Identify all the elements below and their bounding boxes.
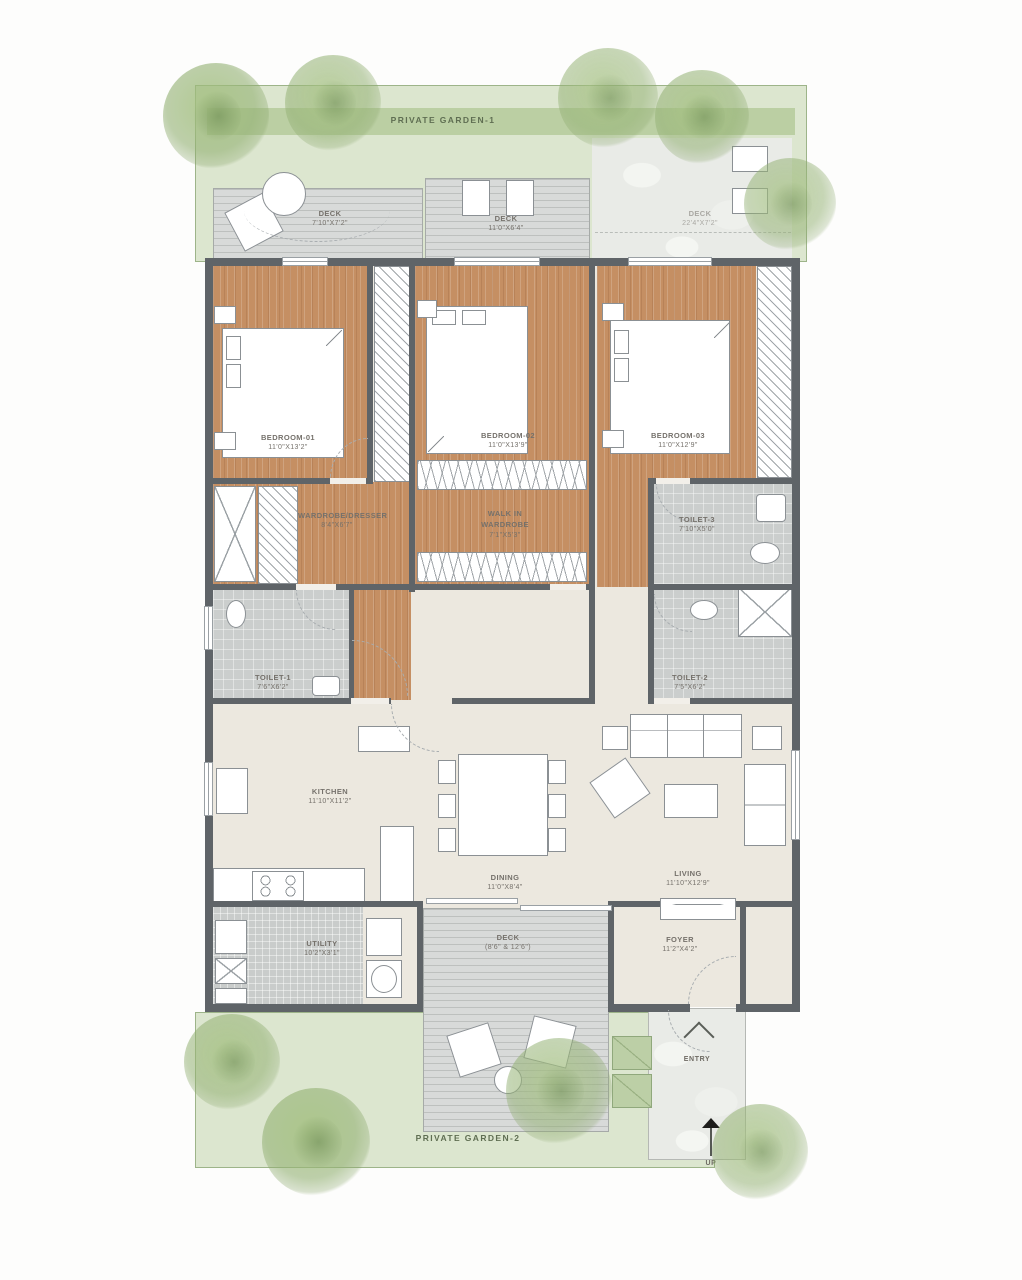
dining-chair — [548, 828, 566, 852]
toilet-3-wc — [750, 542, 780, 564]
dining-chair — [438, 828, 456, 852]
wall — [205, 1004, 423, 1012]
wall — [608, 901, 614, 1010]
dresser-closet — [258, 486, 298, 584]
deck-bottom-label: DECK (8'6" & 12'6") — [485, 932, 531, 954]
private-garden-1-band — [207, 108, 795, 135]
window — [791, 750, 800, 840]
utility-label: UTILITY 10'2"X3'1" — [304, 938, 340, 960]
wall — [409, 258, 415, 592]
window — [204, 762, 213, 816]
deck-top-left-label: DECK 7'10"X7'2" — [312, 208, 348, 230]
entry-planter — [612, 1074, 652, 1108]
tv — [672, 904, 724, 911]
entry-planter — [612, 1036, 652, 1070]
wall — [452, 698, 595, 704]
deck2-planter — [462, 180, 490, 216]
door-opening — [351, 698, 389, 704]
bedroom-1-label: BEDROOM-01 11'0"X13'2" — [261, 432, 315, 454]
living-label: LIVING 11'10"X12'9" — [666, 868, 710, 890]
wall — [792, 258, 800, 1012]
dresser-mirror — [214, 486, 256, 582]
walk-in-shelf-bottom — [417, 552, 587, 582]
door-opening — [330, 478, 366, 484]
laundry-shelf — [366, 918, 402, 956]
sliding-door-panel — [520, 905, 612, 911]
terrace-dash-line — [595, 232, 791, 233]
kitchen-tall-counter — [380, 826, 414, 906]
wall — [417, 901, 423, 1010]
window — [282, 257, 328, 266]
up-arrow-icon — [702, 1118, 720, 1128]
bed-2-fold — [428, 436, 444, 452]
bed-1-pillow — [226, 364, 241, 388]
wardrobe-column-3 — [757, 266, 792, 478]
bed-3-pillow — [614, 358, 629, 382]
wall — [205, 901, 419, 907]
toilet-2-wc — [690, 600, 718, 620]
bed-1-pillow — [226, 336, 241, 360]
wall — [589, 258, 595, 704]
deck2-planter — [506, 180, 534, 216]
bed-1-nightstand — [214, 432, 236, 450]
wardrobe-dresser-label: WARDROBE/DRESSER 8'4"X6'7" — [298, 510, 376, 532]
floor-plan: PRIVATE GARDEN-1 PRIVATE GARDEN-2 DECK 7… — [0, 0, 1022, 1280]
coffee-table — [664, 784, 718, 818]
side-table — [602, 726, 628, 750]
bed-2-pillow — [462, 310, 486, 325]
toilet-3-label: TOILET-3 7'10"X5'0" — [679, 514, 715, 536]
toilet-1-label: TOILET-1 7'6"X6'2" — [255, 672, 291, 694]
washing-machine — [366, 960, 402, 998]
bed-3-pillow — [614, 330, 629, 354]
sofa — [630, 714, 742, 758]
toilet-3-basin — [756, 494, 786, 522]
entry-label: ENTRY — [684, 1056, 710, 1063]
wall — [648, 478, 654, 704]
bed-3-fold — [714, 322, 730, 338]
up-label: UP — [706, 1160, 717, 1167]
walk-in-shelf-top — [417, 460, 587, 490]
dining-label: DINING 11'0"X8'4" — [487, 872, 522, 894]
private-garden-2-label: PRIVATE GARDEN-2 — [416, 1132, 521, 1145]
walk-in-wardrobe-label: WALK IN WARDROBE 7'1"X5'3" — [466, 508, 544, 541]
washing-machine-drum — [371, 965, 397, 993]
wardrobe-column-1 — [374, 266, 411, 482]
dining-chair — [438, 760, 456, 784]
bed-3-nightstand — [602, 303, 624, 321]
toilet-2-label: TOILET-2 7'5"X6'2" — [672, 672, 708, 694]
bed-2-nightstand — [417, 300, 437, 318]
private-garden-1-label: PRIVATE GARDEN-1 — [391, 114, 496, 127]
terrace-label: DECK 22'4"X7'2" — [682, 208, 718, 230]
kitchen-label: KITCHEN 11'10"X11'2" — [308, 786, 351, 808]
bed-1-fold — [326, 330, 342, 346]
window — [628, 257, 712, 266]
bedroom-3-lobby-floor — [597, 479, 649, 587]
toilet-1-wc — [226, 600, 246, 628]
door-opening — [550, 584, 586, 590]
wall — [740, 901, 746, 1010]
toilet-1-basin — [312, 676, 340, 696]
utility-counter — [215, 958, 247, 984]
hob — [252, 871, 304, 901]
fridge — [216, 768, 248, 814]
up-arrow-stem — [710, 1128, 712, 1156]
window — [204, 606, 213, 650]
dining-chair — [548, 760, 566, 784]
utility-sink — [215, 920, 247, 954]
utility-shelf — [215, 988, 247, 1004]
deck-round-table — [494, 1066, 522, 1094]
dining-chair — [438, 794, 456, 818]
side-table — [752, 726, 782, 750]
terrace-planter — [732, 146, 768, 172]
deck-top-mid-label: DECK 11'0"X6'4" — [488, 213, 523, 235]
door-opening — [654, 698, 690, 704]
foyer-label: FOYER 11'2"X4'2" — [662, 934, 697, 956]
terrace-planter — [732, 188, 768, 214]
window — [454, 257, 540, 266]
duct-shaft — [738, 587, 792, 637]
dining-chair — [548, 794, 566, 818]
bed-1-nightstand — [214, 306, 236, 324]
sliding-door-panel — [426, 898, 518, 904]
bed-3-nightstand — [602, 430, 624, 448]
chaise — [744, 764, 786, 846]
bedroom-2-label: BEDROOM-02 11'0"X13'9" — [481, 430, 535, 452]
dining-table — [458, 754, 548, 856]
bedroom-3-label: BEDROOM-03 11'0"X12'9" — [651, 430, 705, 452]
wall — [648, 584, 798, 590]
